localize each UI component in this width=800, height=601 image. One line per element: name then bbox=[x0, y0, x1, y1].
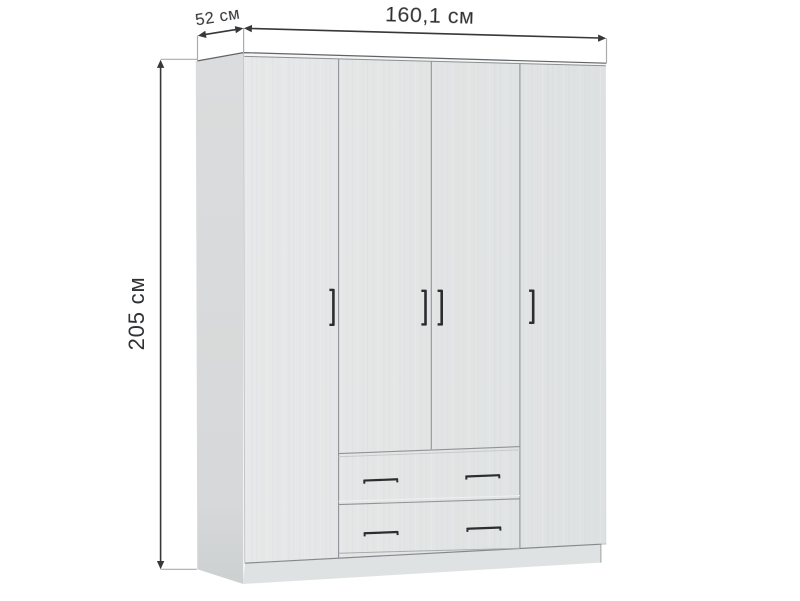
svg-text:160,1 см: 160,1 см bbox=[385, 2, 475, 28]
svg-text:205 см: 205 см bbox=[124, 277, 149, 351]
